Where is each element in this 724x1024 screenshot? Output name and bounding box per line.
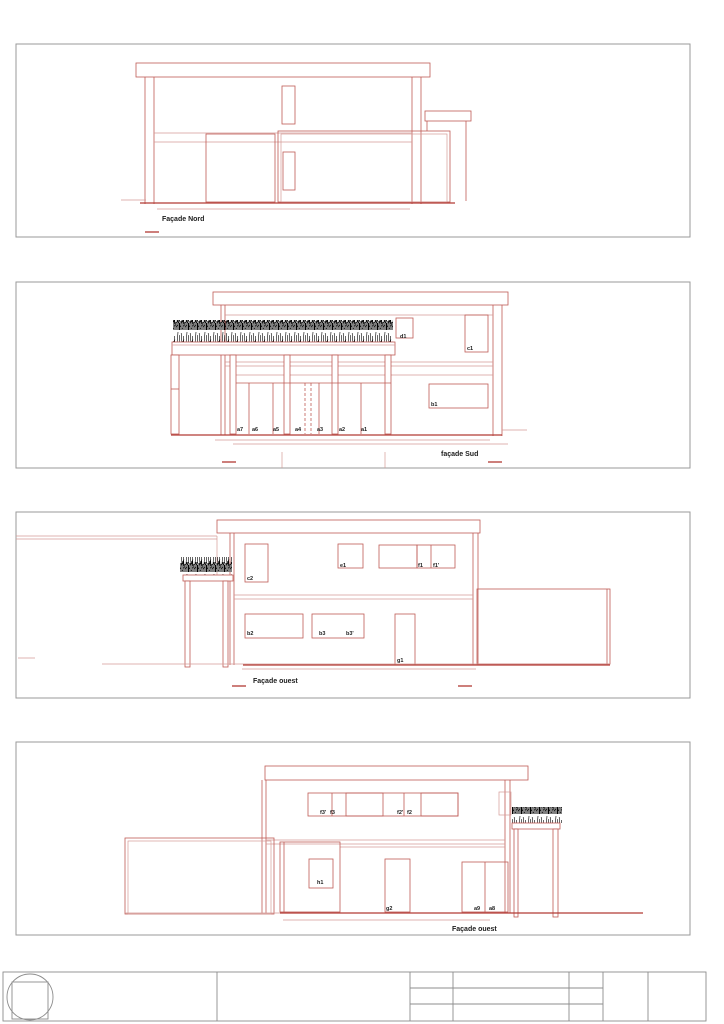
wall-right [412, 77, 421, 204]
label-f1-prime: f1' [433, 563, 440, 569]
planter-post [185, 581, 190, 667]
drawing-sheet: Façade Nord [0, 0, 724, 1024]
planter-vegetation [180, 557, 232, 575]
planter-post [553, 829, 558, 917]
label-g1: g1 [397, 658, 403, 664]
glazing-mullions [236, 383, 391, 434]
planter-box [183, 575, 233, 581]
label-a7: a7 [237, 427, 243, 433]
panel-facade-ouest-1: c2 e1 f1 f1' b2 b3 b3' g1 Façade ouest [16, 512, 690, 698]
panel-title: façade Sud [441, 451, 478, 458]
wall-left [230, 533, 234, 665]
opening-labels: f3' f3 f2' f2 h1 g2 a9 a8 [317, 810, 495, 912]
sliding-door-a9-a8 [462, 862, 508, 912]
label-c1: c1 [467, 346, 473, 352]
label-f1: f1 [418, 563, 423, 569]
label-b3: b3 [319, 631, 325, 637]
label-f2-prime: f2' [397, 810, 404, 816]
roof-slab [213, 292, 508, 305]
floor-slab-lines [266, 840, 505, 847]
label-a3: a3 [317, 427, 323, 433]
pergola-planter [512, 807, 562, 917]
opening-labels: c2 e1 f1 f1' b2 b3 b3' g1 [247, 563, 440, 664]
window-b1 [429, 384, 488, 408]
shopfront-posts [230, 355, 391, 434]
wall-right [499, 780, 511, 913]
label-b1: b1 [431, 402, 437, 408]
wall-right [493, 305, 502, 436]
window-lower [283, 152, 295, 190]
label-h1: h1 [317, 880, 323, 886]
logo-stamp [7, 974, 53, 1020]
label-a6: a6 [252, 427, 258, 433]
garage-volume [125, 838, 274, 914]
roof-slab [217, 520, 480, 533]
planter-post [514, 829, 518, 917]
planter-box [512, 823, 560, 829]
label-f3: f3 [330, 810, 335, 816]
label-a5: a5 [273, 427, 279, 433]
label-b3-prime: b3' [346, 631, 354, 637]
label-a8: a8 [489, 906, 495, 912]
label-f2: f2 [407, 810, 412, 816]
roof-slab [265, 766, 528, 780]
logo-circle [7, 974, 53, 1020]
panel-title: Façade Nord [162, 216, 204, 223]
panel-facade-nord: Façade Nord [16, 44, 690, 237]
garage-volume [206, 134, 275, 202]
label-b2: b2 [247, 631, 253, 637]
elevations-canvas: Façade Nord [0, 0, 724, 1024]
label-a2: a2 [339, 427, 345, 433]
label-e1: e1 [340, 563, 346, 569]
label-a4: a4 [295, 427, 302, 433]
door-g2 [385, 859, 410, 912]
floor-slab-lines [234, 595, 473, 599]
window-upper [282, 86, 295, 124]
panel-facade-sud: a7 a6 a5 a4 a3 a2 a1 d1 c1 b1 façade Sud [16, 282, 690, 468]
label-g2: g2 [386, 906, 392, 912]
canopy-post-left [171, 355, 179, 434]
floor-slab-lines [225, 362, 493, 375]
wall-left [145, 77, 154, 204]
label-f3-prime: f3' [320, 810, 327, 816]
side-canopy [425, 111, 471, 201]
label-d1: d1 [400, 334, 406, 340]
pergola-planter [180, 557, 233, 667]
timber-fence [477, 589, 610, 664]
roof-slab [136, 63, 430, 77]
wall-left [262, 780, 266, 913]
label-a9: a9 [474, 906, 480, 912]
title-block [3, 972, 706, 1021]
louver-f1-assembly [379, 545, 455, 568]
panel-frame [16, 512, 690, 698]
label-c2: c2 [247, 576, 253, 582]
label-a1: a1 [361, 427, 367, 433]
green-roof-vegetation [173, 320, 393, 342]
cladding-h1 [280, 842, 340, 912]
panel-title: Façade ouest [253, 678, 298, 685]
planter-post [223, 581, 228, 667]
floor-slab-lines [154, 133, 412, 142]
canopy-slab [172, 342, 395, 355]
logo-square [12, 982, 48, 1019]
panel-title: Façade ouest [452, 926, 497, 933]
planter-vegetation [512, 807, 562, 823]
title-block-border [3, 972, 706, 1021]
panel-facade-ouest-2: f3' f3 f2' f2 h1 g2 a9 a8 Façade ouest [16, 742, 690, 935]
window-b2 [245, 614, 303, 638]
